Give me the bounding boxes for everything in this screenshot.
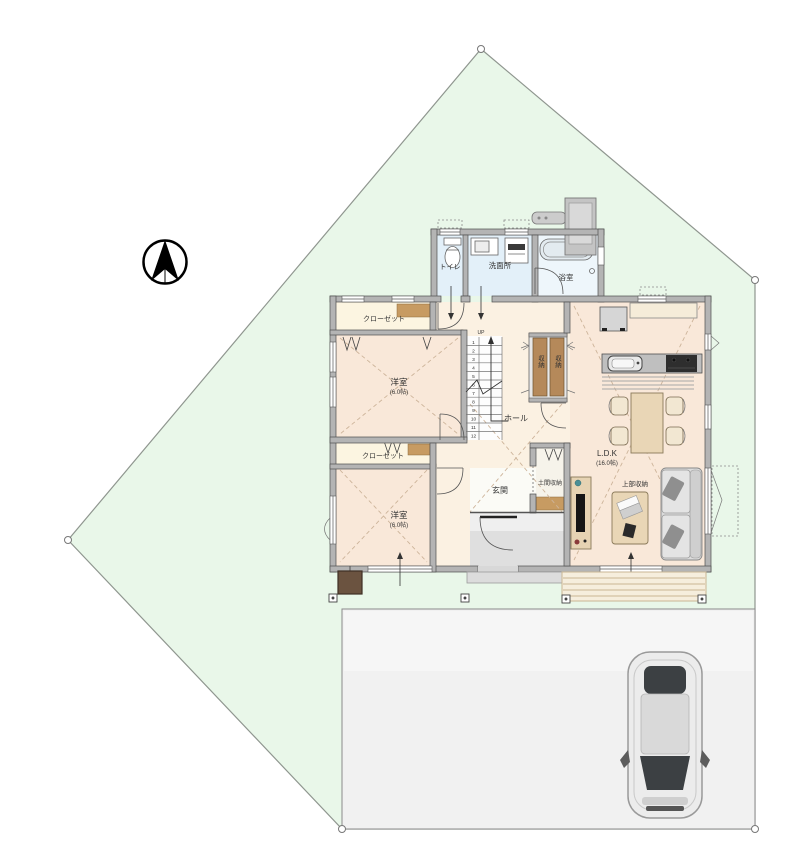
label-doma-storage: 土間収納 xyxy=(538,479,562,487)
label-closet2: クローゼット xyxy=(362,451,404,460)
washing-machine xyxy=(505,238,528,263)
wood-deck xyxy=(562,572,706,601)
label-bedroom2-size: (6.0帖) xyxy=(390,521,408,529)
kitchen-cupboard xyxy=(630,303,697,318)
car-top-view xyxy=(620,652,710,818)
floor-entrance-tile-light xyxy=(470,513,564,531)
stair-step-number: 8 xyxy=(472,400,475,406)
label-bedroom1-size: (6.0帖) xyxy=(390,388,408,396)
doma-storage-shelf xyxy=(536,497,564,510)
front-door-gap-tile xyxy=(478,566,518,572)
stair-step-number: 1 xyxy=(472,340,475,346)
label-bath: 浴室 xyxy=(559,272,574,282)
stair-step-number: 11 xyxy=(471,425,476,431)
label-toilet: トイレ xyxy=(440,264,461,271)
stair-step-number: 5 xyxy=(472,374,475,380)
stair-step-number: 2 xyxy=(472,349,475,355)
stair-step-number: 6 xyxy=(472,383,475,389)
stair-step-number: 4 xyxy=(472,366,475,372)
label-entrance: 玄関 xyxy=(492,485,508,495)
site-plan-svg: トイレ 洗面所 浴室 クローゼット 洋室 (6.0帖) クローゼット 洋室 (6… xyxy=(0,0,800,866)
floor-plan-page: トイレ 洗面所 浴室 クローゼット 洋室 (6.0帖) クローゼット 洋室 (6… xyxy=(0,0,800,866)
washroom-vanity xyxy=(471,238,498,255)
stair-step-number: 9 xyxy=(472,408,475,414)
stair-step-number: 12 xyxy=(471,434,477,440)
label-ldk-size: (16.0帖) xyxy=(596,459,618,467)
label-stairs-up: UP xyxy=(478,330,486,336)
coffee-table xyxy=(612,492,648,544)
stair-step-number: 7 xyxy=(472,391,475,397)
closet2-shelf xyxy=(408,444,430,455)
label-closet1: クローゼット xyxy=(363,314,405,323)
stair-step-number: 10 xyxy=(471,417,477,423)
label-bedroom1: 洋室 xyxy=(390,377,408,387)
refrigerator xyxy=(600,307,627,331)
label-hall: ホール xyxy=(504,414,528,423)
stair-step-number: 3 xyxy=(472,357,475,363)
tv-stand xyxy=(571,477,591,549)
label-washroom: 洗面所 xyxy=(489,260,512,270)
hall-storage xyxy=(521,333,575,402)
label-ldk: L.D.K xyxy=(597,449,618,458)
label-upper-storage: 上部収納 xyxy=(622,479,648,488)
sofa xyxy=(661,468,702,560)
north-arrow-icon xyxy=(144,240,187,284)
label-bedroom2: 洋室 xyxy=(390,510,408,520)
kitchen-counter xyxy=(602,354,702,373)
entrance-porch xyxy=(467,572,566,583)
